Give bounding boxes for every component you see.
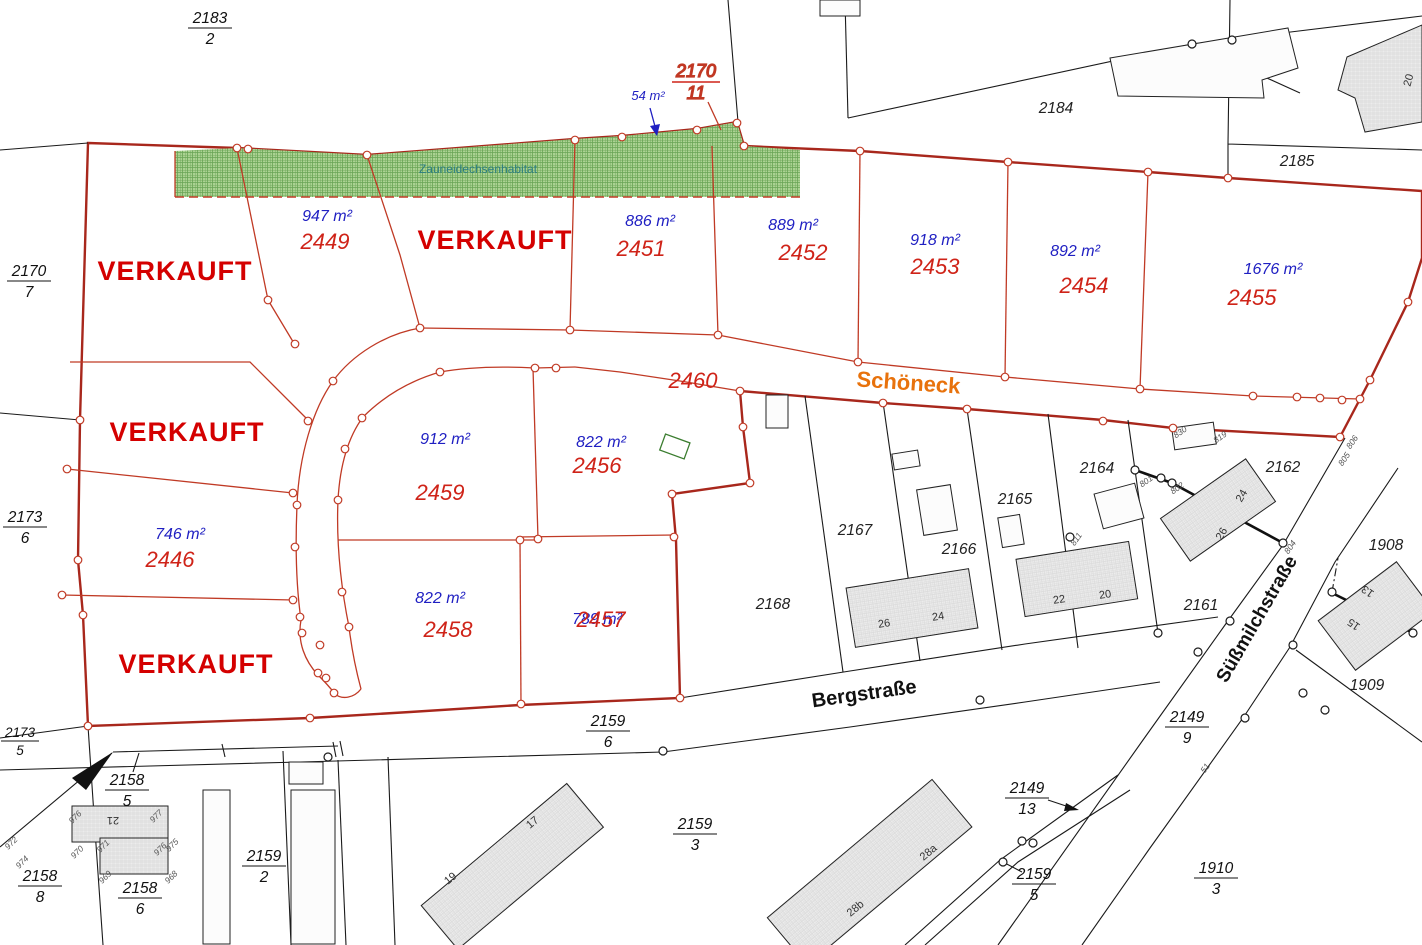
building-22-20 (1016, 541, 1138, 616)
parcel-2185: 2185 (1279, 153, 1315, 170)
fraction-2159-2: 21592 (242, 848, 286, 886)
svg-text:2170: 2170 (675, 61, 716, 81)
svg-text:11: 11 (687, 83, 706, 103)
plot-2452: 2452 (778, 240, 828, 265)
svg-text:3: 3 (691, 837, 700, 854)
point-970: 970 (68, 843, 85, 860)
parcel-2161: 2161 (1183, 597, 1218, 614)
svg-text:8: 8 (36, 889, 45, 906)
sold-label-4: VERKAUFT (418, 225, 573, 255)
svg-text:13: 13 (1018, 801, 1036, 818)
lizard-habitat-area (175, 122, 800, 197)
building-13-15 (1318, 562, 1422, 670)
fraction-2158-6: 21586 (118, 880, 162, 918)
fraction-2159-3: 21593 (673, 816, 717, 854)
point-51: 51 (1198, 761, 1212, 775)
street-bergstrasse: Bergstraße (810, 676, 918, 712)
plot-2451: 2451 (616, 236, 666, 261)
fraction-1910-3: 19103 (1194, 860, 1238, 898)
svg-text:2: 2 (259, 869, 269, 886)
svg-text:6: 6 (604, 734, 613, 751)
fraction-2159-6: 21596 (586, 713, 630, 751)
area-2455: 1676 m² (1244, 261, 1303, 278)
svg-text:2170: 2170 (11, 263, 47, 280)
building-out-2165 (998, 514, 1024, 547)
point-972: 972 (2, 834, 19, 851)
cadastral-map: VERKAUFT VERKAUFT VERKAUFT VERKAUFT Zaun… (0, 0, 1422, 945)
plot-2457: 2457 (576, 607, 627, 632)
fraction-2173-5: 21735 (1, 725, 39, 758)
plot-2455: 2455 (1227, 285, 1278, 310)
svg-text:6: 6 (136, 901, 145, 918)
point-805: 805 (1336, 450, 1352, 468)
fraction-2173-6: 21736 (3, 509, 47, 547)
building-out-2164 (1094, 483, 1144, 529)
building-28 (767, 779, 972, 945)
plot-2454: 2454 (1059, 273, 1109, 298)
plot-2460: 2460 (668, 368, 719, 393)
building-19-17 (421, 783, 603, 945)
svg-text:3: 3 (1212, 881, 1221, 898)
area-2458: 822 m² (415, 590, 465, 607)
parcel-2165: 2165 (997, 491, 1033, 508)
house-22: 22 (1052, 593, 1066, 607)
svg-text:2159: 2159 (246, 848, 282, 865)
house-26: 26 (877, 617, 891, 631)
sold-label-3: VERKAUFT (119, 649, 274, 679)
parcel-2168: 2168 (755, 596, 791, 613)
svg-text:2158: 2158 (122, 880, 158, 897)
barn-right (291, 790, 335, 944)
building-out-2167 (892, 450, 920, 470)
svg-text:5: 5 (123, 793, 132, 810)
building-26-24 (846, 569, 978, 648)
plot-2449: 2449 (300, 229, 350, 254)
fraction-2159-5: 21595 (1012, 866, 1056, 904)
area-2446: 746 m² (155, 526, 205, 543)
annotation-54qm: 54 m² (631, 88, 665, 103)
svg-text:1910: 1910 (1199, 860, 1234, 877)
parcel-1909: 1909 (1350, 677, 1385, 694)
parcel-2166: 2166 (941, 541, 977, 558)
svg-text:2: 2 (205, 31, 215, 48)
parcel-1908: 1908 (1369, 537, 1404, 554)
area-2454: 892 m² (1050, 243, 1100, 260)
habitat-label: Zauneidechsenhabitat (419, 162, 538, 176)
svg-text:2159: 2159 (1016, 866, 1052, 883)
buildings (72, 0, 1422, 945)
area-2452: 889 m² (768, 217, 818, 234)
building-2184 (1110, 28, 1298, 98)
fraction-2149-9: 21499 (1165, 709, 1209, 747)
house-21: 21 (107, 814, 119, 826)
svg-text:2149: 2149 (1009, 780, 1045, 797)
green-structure-2456 (660, 434, 690, 459)
house-24: 24 (931, 610, 945, 624)
fraction-2158-8: 21588 (18, 868, 62, 906)
svg-text:6: 6 (21, 530, 30, 547)
svg-text:2159: 2159 (590, 713, 626, 730)
area-2456: 822 m² (576, 434, 626, 451)
area-2449: 947 m² (302, 208, 352, 225)
parcel-2184: 2184 (1038, 100, 1074, 117)
fraction-2149-13: 214913 (1005, 780, 1049, 818)
development-area (78, 122, 1422, 726)
building-2162 (1160, 459, 1275, 561)
point-806: 806 (1344, 433, 1360, 451)
shed-2159-2 (289, 762, 323, 784)
area-2459: 912 m² (420, 431, 470, 448)
house-20: 20 (1098, 588, 1112, 602)
fraction-2170-7: 21707 (7, 263, 51, 301)
barn-left (203, 790, 230, 944)
sold-label-2: VERKAUFT (110, 417, 265, 447)
sold-label-1: VERKAUFT (98, 256, 253, 286)
building-small-top (820, 0, 860, 16)
svg-text:2173: 2173 (4, 725, 36, 740)
svg-text:5: 5 (16, 743, 24, 758)
svg-text:2149: 2149 (1169, 709, 1205, 726)
plot-2456: 2456 (572, 453, 623, 478)
parcel-2162: 2162 (1265, 459, 1301, 476)
parcel-2164: 2164 (1079, 460, 1115, 477)
plot-2453: 2453 (910, 254, 961, 279)
plot-2458: 2458 (423, 617, 474, 642)
fraction-2158-5: 21585 (105, 772, 149, 810)
fraction-2170-11: 217011 (672, 61, 720, 103)
fraction-2183-2: 21832 (188, 10, 232, 48)
svg-text:2183: 2183 (192, 10, 228, 27)
svg-text:2158: 2158 (22, 868, 58, 885)
area-2451: 886 m² (625, 213, 675, 230)
svg-text:7: 7 (25, 284, 35, 301)
parcel-2167: 2167 (837, 522, 874, 539)
building-out-2166 (917, 485, 958, 536)
plot-2459: 2459 (415, 480, 465, 505)
svg-text:2158: 2158 (109, 772, 145, 789)
cadastral-map-page: VERKAUFT VERKAUFT VERKAUFT VERKAUFT Zaun… (0, 0, 1422, 945)
svg-text:5: 5 (1030, 887, 1039, 904)
plot-2446: 2446 (145, 547, 196, 572)
svg-text:9: 9 (1183, 730, 1192, 747)
area-2453: 918 m² (910, 232, 960, 249)
building-shed-2168 (766, 395, 788, 428)
svg-text:2173: 2173 (7, 509, 43, 526)
svg-text:2159: 2159 (677, 816, 713, 833)
